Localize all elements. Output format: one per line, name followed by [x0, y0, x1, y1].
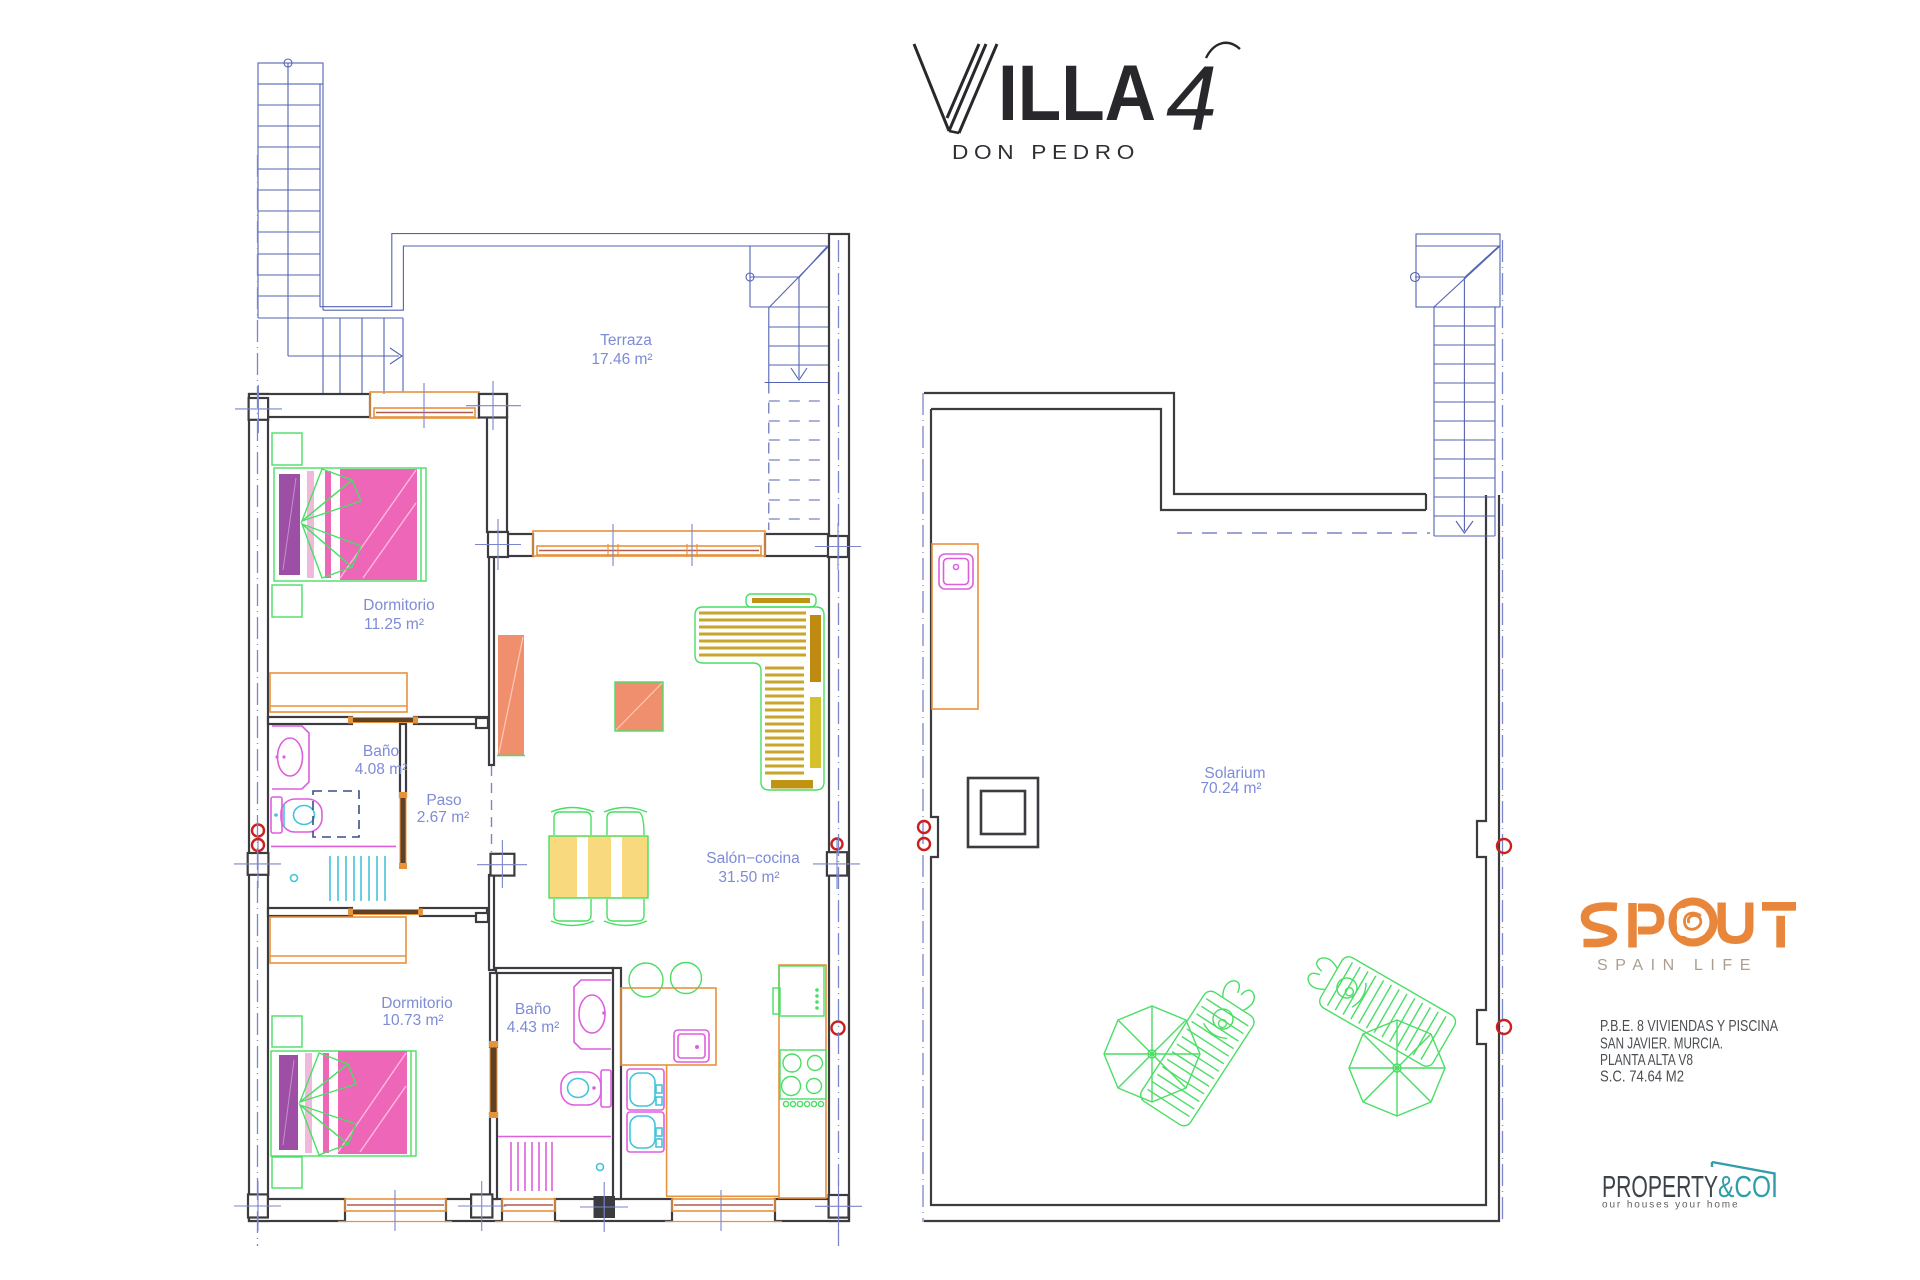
svg-text:4: 4: [1166, 48, 1217, 150]
svg-text:2.67 m²: 2.67 m²: [417, 809, 470, 826]
svg-text:31.50 m²: 31.50 m²: [718, 869, 779, 886]
svg-text:DON PEDRO: DON PEDRO: [952, 142, 1140, 164]
svg-text:4.43 m²: 4.43 m²: [507, 1019, 560, 1036]
svg-text:PLANTA ALTA V8: PLANTA ALTA V8: [1600, 1052, 1693, 1069]
svg-text:Baño: Baño: [363, 743, 399, 760]
svg-text:Dormitorio: Dormitorio: [363, 597, 434, 614]
svg-text:11.25 m²: 11.25 m²: [364, 616, 424, 633]
svg-text:ILLA: ILLA: [998, 49, 1156, 137]
svg-text:P.B.E. 8 VIVIENDAS Y PISCINA: P.B.E. 8 VIVIENDAS Y PISCINA: [1600, 1018, 1779, 1035]
svg-text:SPAIN LIFE: SPAIN LIFE: [1597, 957, 1758, 974]
svg-text:our houses your home: our houses your home: [1602, 1200, 1740, 1211]
svg-text:Paso: Paso: [426, 792, 461, 809]
svg-text:SAN JAVIER. MURCIA.: SAN JAVIER. MURCIA.: [1600, 1036, 1723, 1053]
svg-text:Salón−cocina: Salón−cocina: [706, 850, 800, 867]
svg-text:70.24 m²: 70.24 m²: [1200, 780, 1261, 797]
svg-text:17.46 m²: 17.46 m²: [591, 351, 652, 368]
svg-text:Baño: Baño: [515, 1001, 551, 1018]
svg-text:10.73 m²: 10.73 m²: [382, 1012, 443, 1029]
svg-text:S.C. 74.64 M2: S.C. 74.64 M2: [1600, 1069, 1684, 1086]
svg-text:Terraza: Terraza: [600, 332, 652, 349]
svg-text:Dormitorio: Dormitorio: [381, 995, 452, 1012]
svg-text:4.08 m²: 4.08 m²: [355, 761, 408, 778]
